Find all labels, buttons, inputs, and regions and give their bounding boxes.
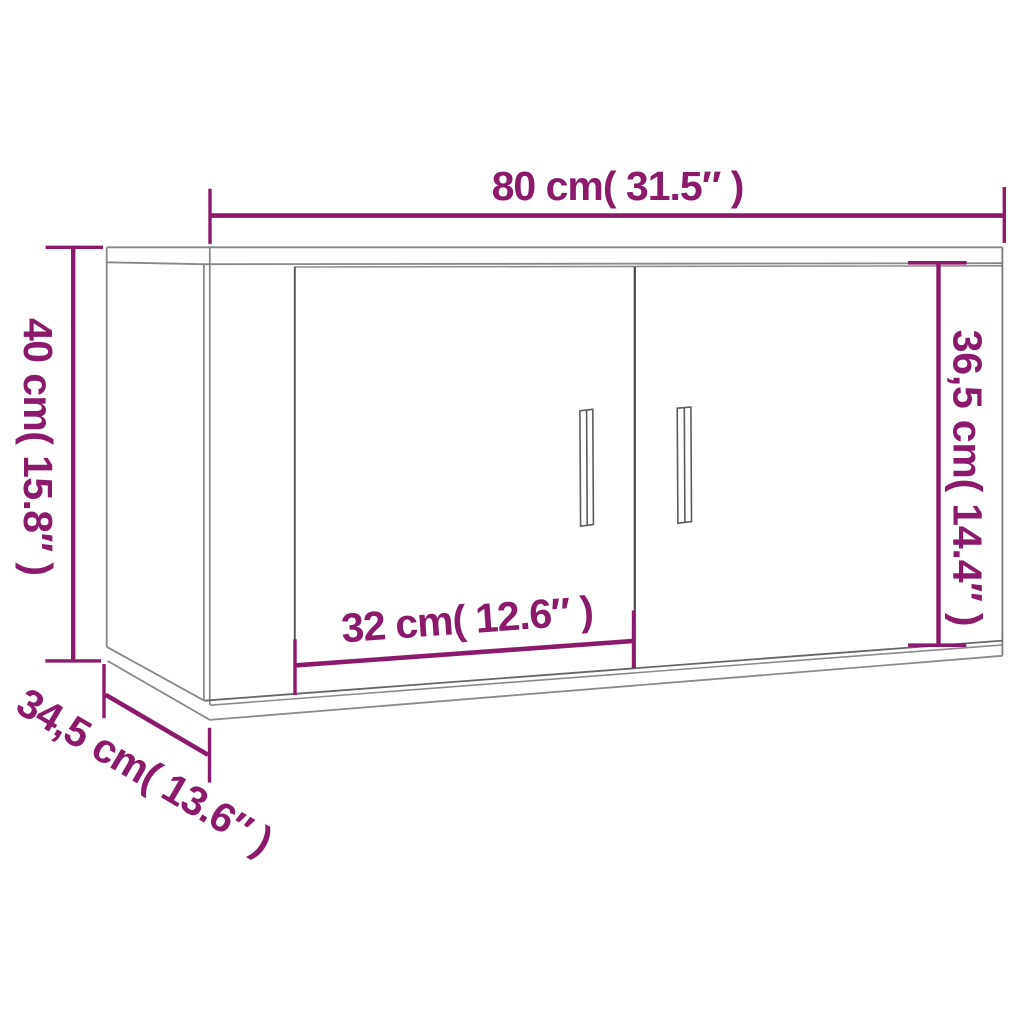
svg-text:80 cm( 31.5″ ): 80 cm( 31.5″ ) — [492, 163, 744, 209]
svg-text:36,5 cm( 14.4″ ): 36,5 cm( 14.4″ ) — [945, 330, 991, 627]
svg-text:40 cm( 15.8″ ): 40 cm( 15.8″ ) — [15, 318, 61, 575]
